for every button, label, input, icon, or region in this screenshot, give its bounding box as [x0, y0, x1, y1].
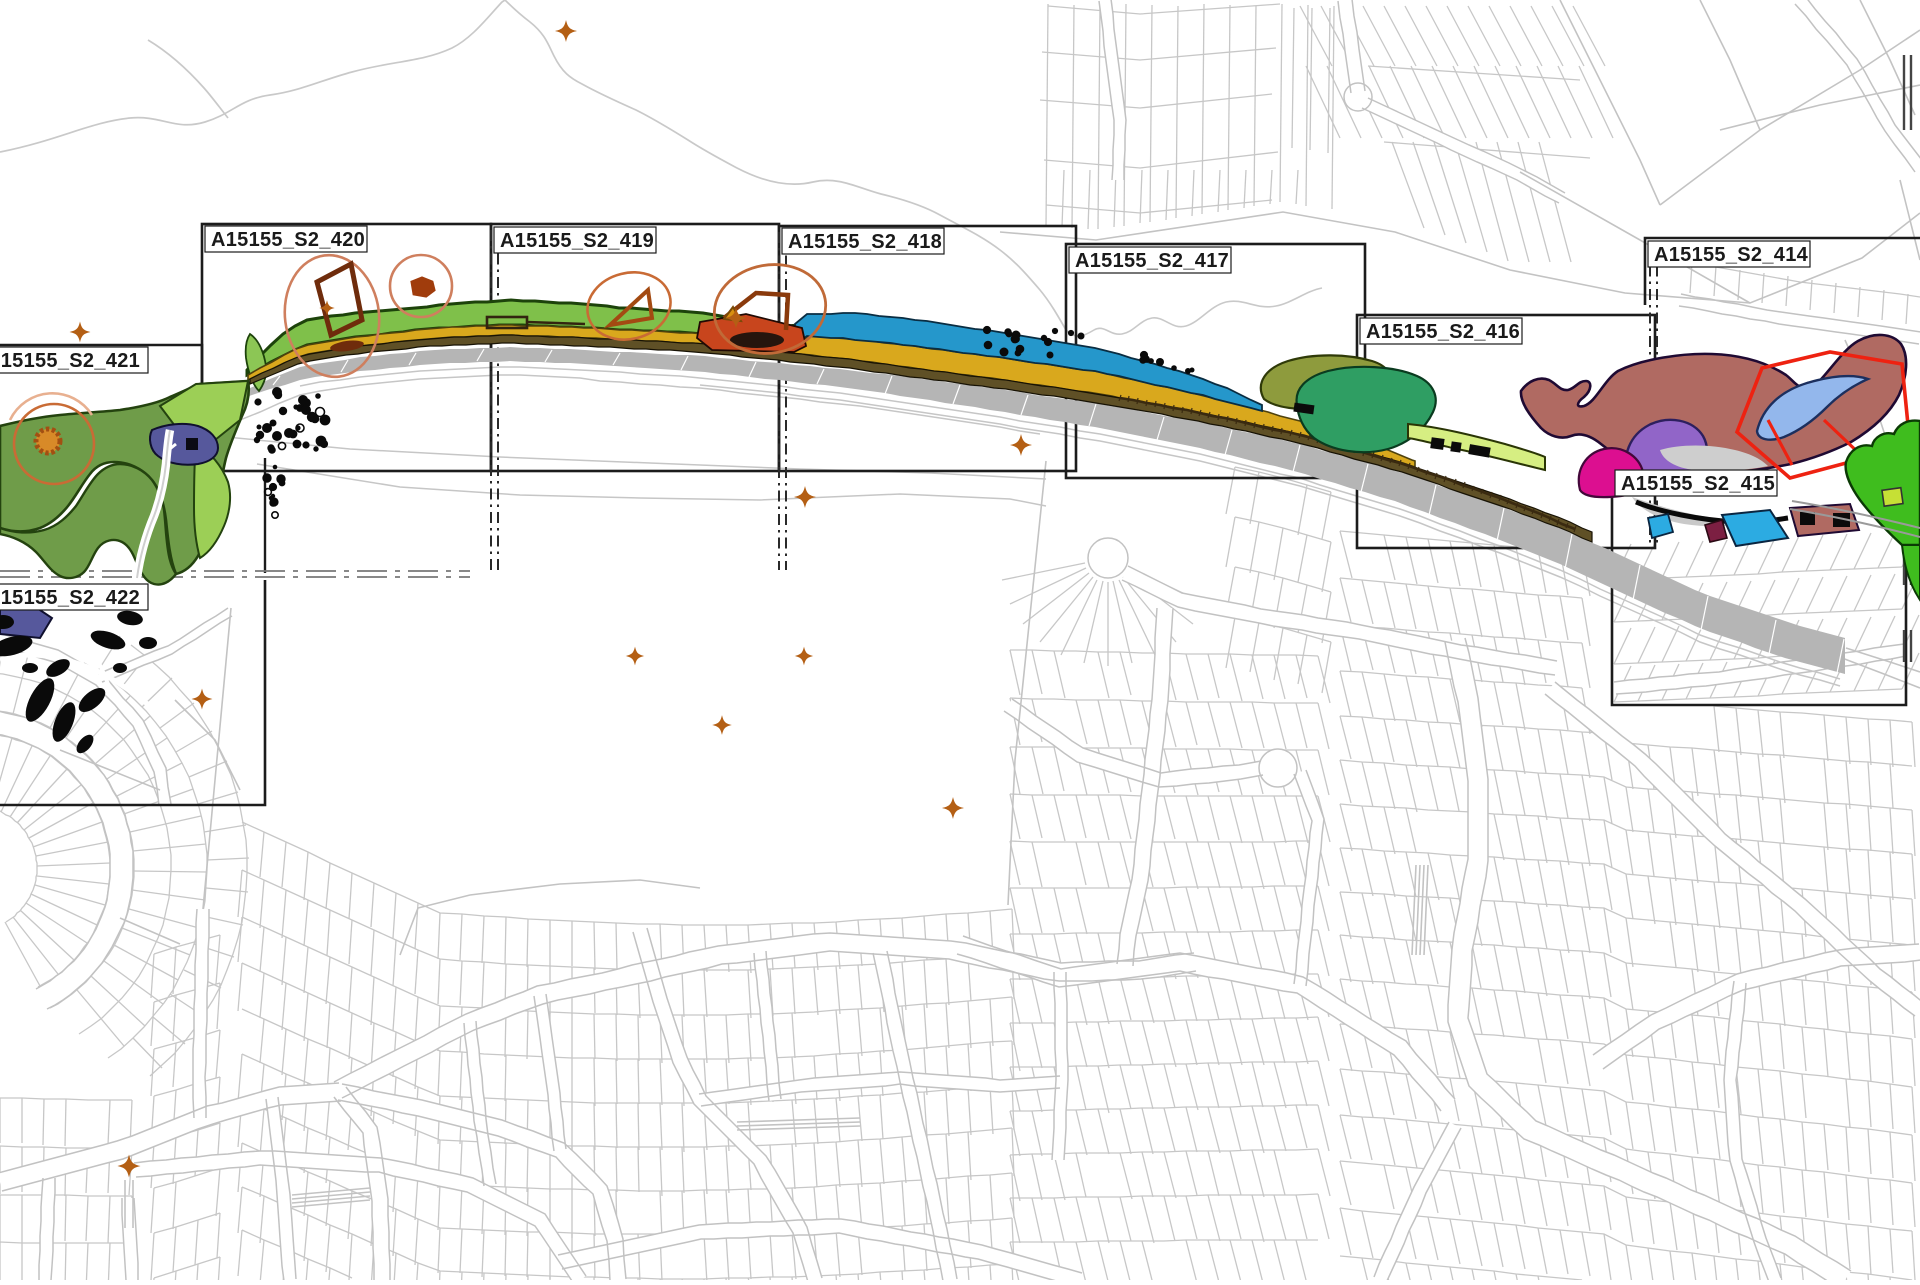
svg-text:A15155_S2_420: A15155_S2_420 — [211, 229, 365, 251]
svg-text:A15155_S2_421: A15155_S2_421 — [0, 350, 140, 372]
svg-text:A15155_S2_417: A15155_S2_417 — [1075, 250, 1229, 272]
svg-text:A15155_S2_415: A15155_S2_415 — [1621, 473, 1775, 495]
svg-text:A15155_S2_414: A15155_S2_414 — [1654, 244, 1809, 266]
svg-text:A15155_S2_416: A15155_S2_416 — [1366, 321, 1520, 343]
svg-text:A15155_S2_419: A15155_S2_419 — [500, 230, 654, 252]
svg-text:A15155_S2_422: A15155_S2_422 — [0, 587, 140, 609]
svg-text:A15155_S2_418: A15155_S2_418 — [788, 231, 942, 253]
